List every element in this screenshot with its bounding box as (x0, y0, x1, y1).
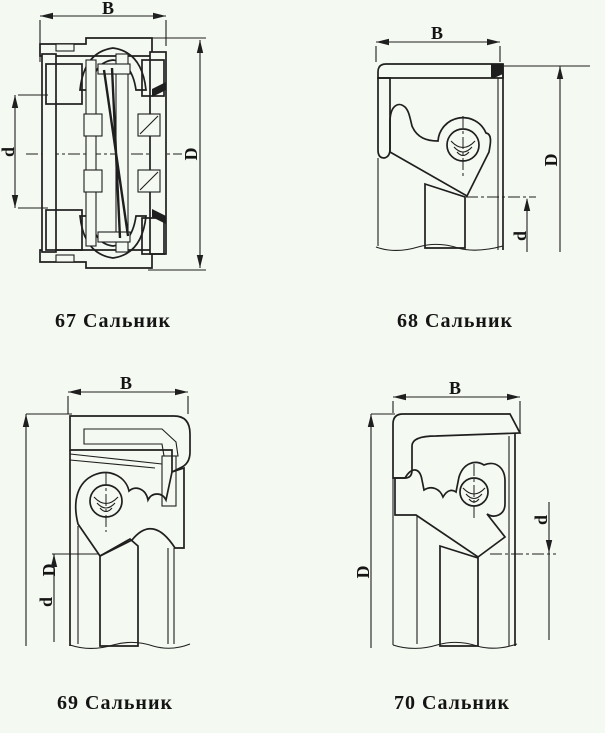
dimension-d-70: d (490, 502, 556, 640)
seal-68-case-leg (378, 78, 390, 158)
seal-69-body (70, 416, 190, 648)
figure-68-drawing: B D d (376, 23, 590, 252)
dimension-D-68: D (504, 66, 590, 252)
dimension-d-67: d (0, 95, 48, 208)
dim-label-width-67: B (102, 0, 114, 18)
seal-67-inner-bar-top (98, 64, 130, 74)
dim-label-inner-70: d (531, 515, 551, 525)
seal-67-spring-seat-left-top (84, 114, 102, 136)
dimension-B-70: B (393, 378, 520, 432)
dim-label-inner-69: d (36, 597, 56, 607)
seal-69-rubber-lip (76, 468, 184, 556)
dim-label-width-69: B (120, 373, 132, 393)
dim-label-width-70: B (449, 378, 461, 398)
seal-68-shaft (425, 184, 465, 248)
figure-67-caption: 67 Сальник (23, 310, 203, 333)
seal-69-shaft (100, 539, 138, 646)
seal-67-left-wall (42, 54, 56, 252)
seal-69-insert-leg (162, 456, 176, 506)
seal-68-face-lines (378, 78, 498, 250)
seal-68-case-top (378, 64, 503, 78)
dimension-B-69: B (68, 373, 188, 414)
dimension-B-68: B (376, 23, 500, 62)
drawings-canvas: B D d (0, 0, 605, 733)
seal-67-body (26, 38, 182, 268)
dim-label-inner-67: d (0, 147, 18, 157)
seal-70-shaft (440, 546, 478, 646)
dim-label-inner-68: d (510, 231, 530, 241)
seal-67-inner-plate-left (86, 60, 96, 246)
seal-70-body (393, 414, 520, 648)
dimension-d-68: d (466, 197, 536, 252)
seal-69-metal-insert (84, 429, 178, 456)
seal-68-case-fold (491, 64, 503, 78)
seal-67-spring-seat-left-bottom (84, 170, 102, 192)
figure-70-drawing: B D d (353, 378, 556, 648)
seal-69-cavity-lines (70, 454, 162, 468)
dim-label-width-68: B (431, 23, 443, 43)
seal-67-bottom-notch (56, 255, 74, 262)
catalog-page: B D d (0, 0, 605, 733)
seal-67-inner-bar-bottom (98, 232, 130, 242)
seal-67-top-notch (56, 44, 74, 51)
dim-label-outer-70: D (353, 566, 373, 579)
dim-label-outer-68: D (541, 154, 561, 167)
figure-69-drawing: B D d (23, 373, 190, 648)
figure-67-drawing: B D d (0, 0, 206, 270)
dimension-D-69: D (23, 414, 72, 646)
dimension-D-70: D (353, 414, 395, 648)
seal-70-rubber (395, 462, 505, 557)
figure-68-caption: 68 Сальник (365, 310, 545, 333)
figure-69-caption: 69 Сальник (25, 692, 205, 715)
figure-70-caption: 70 Сальник (362, 692, 542, 715)
dim-label-outer-67: D (181, 148, 201, 161)
seal-70-bore-lines (393, 478, 417, 645)
seal-68-body (376, 64, 503, 250)
